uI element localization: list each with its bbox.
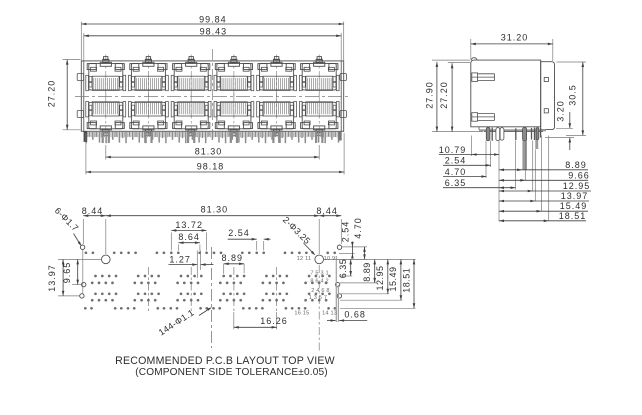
svg-text:8 6 4 2: 8 6 4 2 (310, 278, 329, 284)
svg-text:2.54: 2.54 (341, 221, 351, 243)
svg-text:7 5 3 1: 7 5 3 1 (310, 271, 329, 277)
svg-text:81.30: 81.30 (195, 147, 223, 157)
svg-text:6.35: 6.35 (445, 178, 467, 188)
svg-text:18.51: 18.51 (401, 268, 411, 293)
svg-text:2 4 6 8: 2 4 6 8 (311, 288, 330, 294)
svg-text:27.20: 27.20 (439, 81, 449, 109)
svg-text:27.90: 27.90 (424, 81, 434, 109)
svg-text:9.65: 9.65 (62, 262, 72, 284)
svg-text:16.26: 16.26 (260, 316, 288, 326)
svg-text:8.89: 8.89 (362, 262, 372, 282)
svg-text:4.70: 4.70 (445, 167, 467, 177)
svg-text:2.54: 2.54 (445, 156, 467, 166)
svg-text:12.95: 12.95 (563, 181, 591, 191)
svg-text:13.97: 13.97 (561, 191, 589, 201)
svg-text:27.20: 27.20 (47, 80, 57, 108)
svg-text:81.30: 81.30 (201, 205, 229, 215)
svg-text:8.89: 8.89 (222, 253, 244, 263)
svg-text:18.51: 18.51 (559, 211, 587, 221)
svg-text:2.54: 2.54 (228, 228, 250, 238)
svg-text:4.70: 4.70 (353, 217, 363, 239)
svg-text:8.89: 8.89 (565, 160, 587, 170)
svg-text:30.5: 30.5 (568, 84, 578, 106)
svg-text:14 13: 14 13 (322, 311, 337, 317)
svg-text:(COMPONENT SIDE TOLERANCE±0.05: (COMPONENT SIDE TOLERANCE±0.05) (135, 367, 327, 378)
svg-text:31.20: 31.20 (501, 32, 529, 42)
svg-text:13.72: 13.72 (175, 220, 203, 230)
svg-text:6.35: 6.35 (338, 259, 348, 279)
svg-text:99.84: 99.84 (199, 15, 227, 25)
svg-text:3.20: 3.20 (556, 100, 566, 122)
svg-text:8.44: 8.44 (82, 206, 104, 216)
svg-text:13.97: 13.97 (47, 264, 57, 292)
svg-text:16 15: 16 15 (294, 311, 309, 317)
svg-text:1.27: 1.27 (169, 254, 191, 264)
svg-text:10.79: 10.79 (439, 145, 467, 155)
svg-text:9.66: 9.66 (568, 171, 590, 181)
svg-text:98.18: 98.18 (197, 162, 225, 172)
svg-text:8.64: 8.64 (178, 232, 200, 242)
svg-text:1 3 5 7: 1 3 5 7 (309, 295, 328, 301)
svg-text:0.68: 0.68 (344, 310, 366, 320)
svg-text:15.49: 15.49 (388, 266, 398, 291)
svg-text:15.49: 15.49 (560, 201, 588, 211)
svg-text:12 11: 12 11 (297, 256, 312, 262)
svg-text:RECOMMENDED P.C.B LAYOUT TOP V: RECOMMENDED P.C.B LAYOUT TOP VIEW (115, 355, 335, 367)
svg-text:12.95: 12.95 (375, 265, 385, 290)
svg-text:10 9: 10 9 (324, 256, 336, 262)
svg-text:8.44: 8.44 (316, 206, 338, 216)
svg-text:98.43: 98.43 (200, 26, 228, 36)
